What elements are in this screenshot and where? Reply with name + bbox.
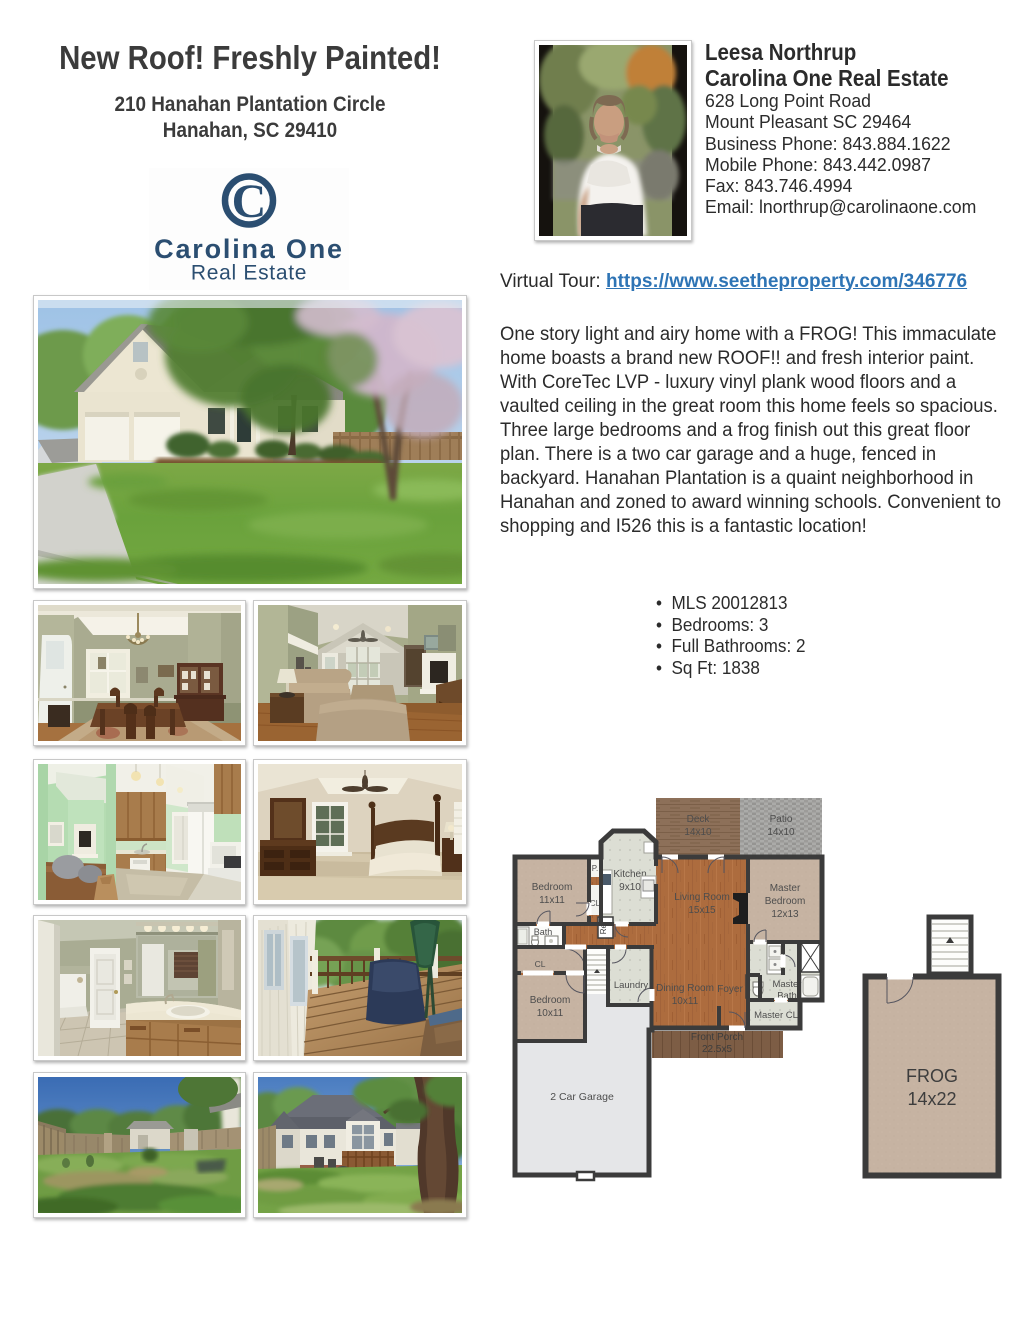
svg-text:Deck: Deck <box>687 814 711 825</box>
svg-text:Dining Room: Dining Room <box>656 983 714 994</box>
svg-text:9x10: 9x10 <box>619 882 641 893</box>
svg-text:Master CL: Master CL <box>754 1010 798 1021</box>
svg-text:14x22: 14x22 <box>907 1089 956 1109</box>
svg-text:Foyer: Foyer <box>717 984 743 995</box>
svg-text:Laundry: Laundry <box>614 980 649 991</box>
svg-text:11x11: 11x11 <box>539 895 565 906</box>
svg-text:10x11: 10x11 <box>537 1008 564 1019</box>
svg-text:C: C <box>232 175 267 228</box>
svg-text:Bath: Bath <box>534 927 553 937</box>
svg-text:Bedroom: Bedroom <box>530 995 571 1006</box>
svg-text:Bedroom: Bedroom <box>765 896 806 907</box>
svg-text:Carolina One: Carolina One <box>154 234 344 264</box>
svg-text:Real Estate: Real Estate <box>191 262 307 285</box>
svg-text:P.: P. <box>592 864 599 873</box>
svg-text:Living Room: Living Room <box>674 892 730 903</box>
svg-text:CL: CL <box>535 959 546 969</box>
svg-text:10x11: 10x11 <box>672 996 699 1007</box>
svg-text:Patio: Patio <box>770 814 793 825</box>
svg-text:15x15: 15x15 <box>688 905 716 916</box>
svg-text:FROG: FROG <box>906 1066 958 1086</box>
svg-text:2 Car Garage: 2 Car Garage <box>550 1091 614 1103</box>
svg-text:Front Porch: Front Porch <box>691 1032 743 1043</box>
svg-text:22.5x5: 22.5x5 <box>702 1044 732 1055</box>
svg-text:Bedroom: Bedroom <box>532 882 573 893</box>
svg-text:12x13: 12x13 <box>771 909 799 920</box>
svg-text:Master: Master <box>770 883 801 894</box>
svg-text:14x10: 14x10 <box>767 827 795 838</box>
svg-text:14x10: 14x10 <box>684 827 712 838</box>
